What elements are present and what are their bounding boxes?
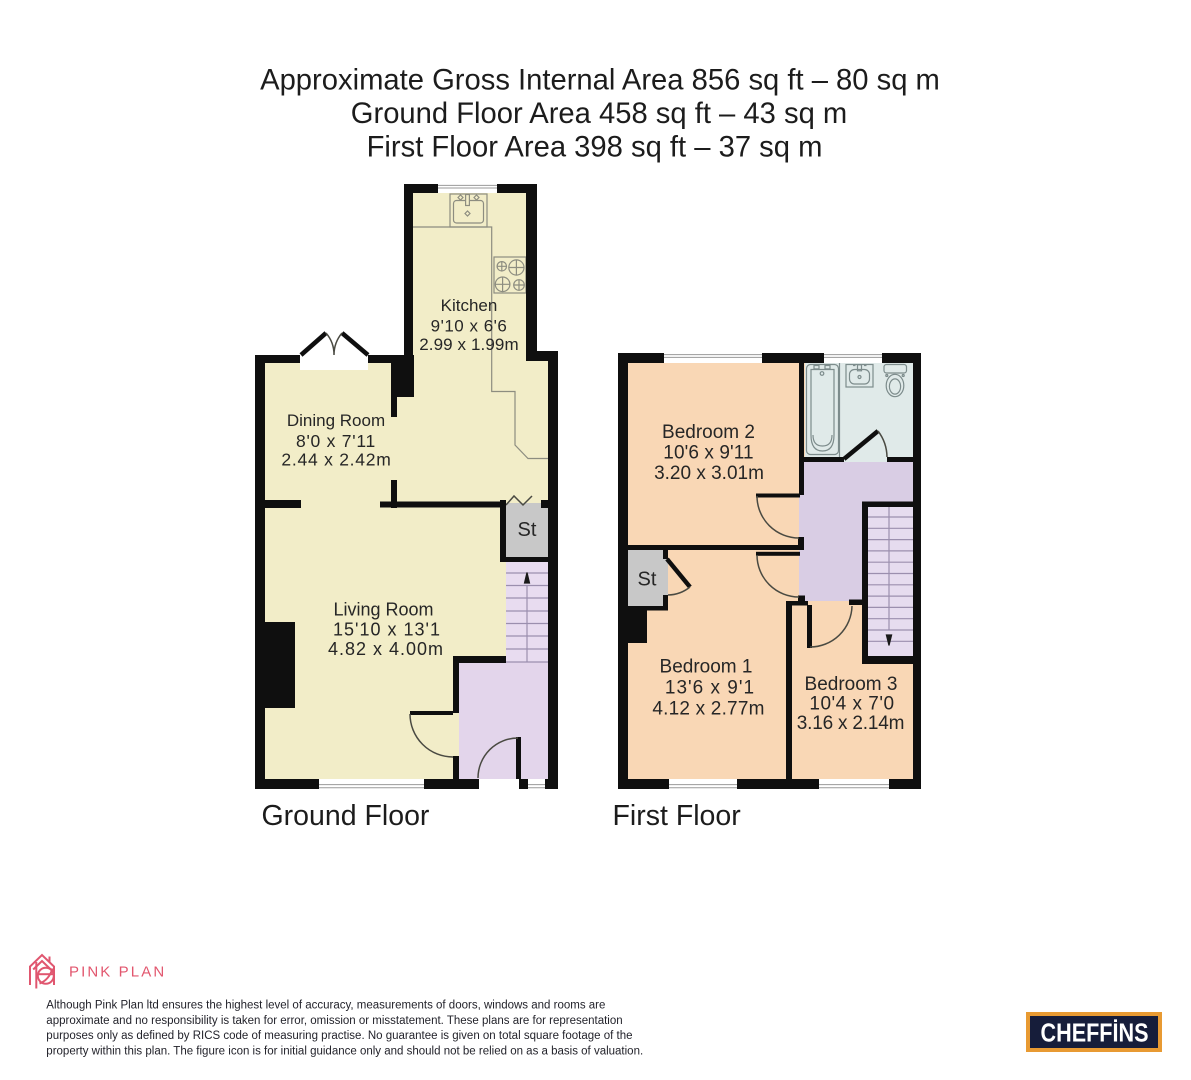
svg-text:Although Pink Plan ltd ensures: Although Pink Plan ltd ensures the highe… [46,1000,605,1012]
svg-text:approximate and no responsibil: approximate and no responsibility is tak… [46,1015,622,1027]
svg-text:Bedroom 2: Bedroom 2 [662,422,755,443]
svg-text:CHEFFİNS: CHEFFİNS [1041,1018,1149,1048]
svg-text:Ground Floor: Ground Floor [262,800,430,832]
svg-text:2.99 x 1.99m: 2.99 x 1.99m [419,335,518,354]
svg-text:15'10 x 13'1: 15'10 x 13'1 [333,619,441,639]
svg-text:Dining Room: Dining Room [287,411,385,430]
svg-text:4.12 x 2.77m: 4.12 x 2.77m [652,699,764,720]
svg-text:Approximate Gross Internal Are: Approximate Gross Internal Area 856 sq f… [260,65,940,97]
svg-text:St: St [518,519,537,541]
svg-text:First Floor Area 398 sq ft – 3: First Floor Area 398 sq ft – 37 sq m [367,132,823,164]
svg-text:Ground Floor Area 458 sq ft –: Ground Floor Area 458 sq ft – 43 sq m [351,98,847,130]
svg-text:2.44 x 2.42m: 2.44 x 2.42m [281,450,391,470]
svg-text:3.16 x 2.14m: 3.16 x 2.14m [797,713,904,734]
svg-text:10'4 x 7'0: 10'4 x 7'0 [809,694,894,715]
svg-text:13'6 x 9'1: 13'6 x 9'1 [665,678,755,699]
svg-text:Living Room: Living Room [333,600,433,620]
svg-text:9'10 x 6'6: 9'10 x 6'6 [431,317,508,336]
svg-text:3.20 x 3.01m: 3.20 x 3.01m [654,463,764,484]
svg-text:Bedroom 1: Bedroom 1 [660,657,753,678]
svg-text:property within this plan. The: property within this plan. The figure ic… [46,1046,643,1058]
svg-text:purposes only as defined by RI: purposes only as defined by RICS code of… [46,1030,632,1042]
svg-text:PINK PLAN: PINK PLAN [69,963,166,980]
svg-text:4.82 x 4.00m: 4.82 x 4.00m [328,639,444,659]
svg-text:8'0 x 7'11: 8'0 x 7'11 [296,431,376,451]
svg-text:St: St [638,568,657,590]
svg-text:10'6 x 9'11: 10'6 x 9'11 [663,443,753,464]
svg-text:Kitchen: Kitchen [441,296,498,315]
svg-text:First Floor: First Floor [613,800,742,832]
svg-text:Bedroom 3: Bedroom 3 [805,674,898,695]
